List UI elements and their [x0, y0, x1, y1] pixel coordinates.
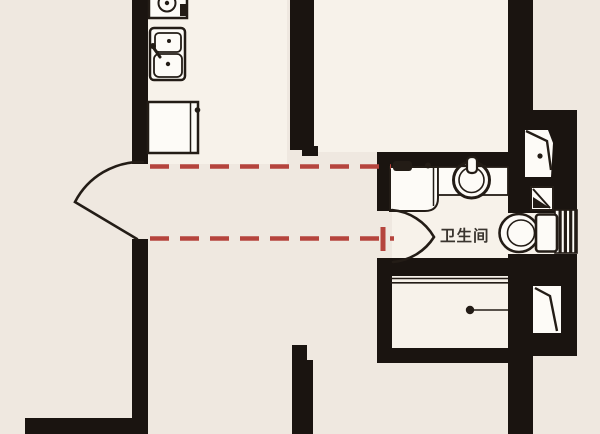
- wall-right-column-top: [508, 0, 533, 116]
- cabinet-hinge-dot: [195, 107, 201, 113]
- wall-bottom-left: [25, 418, 148, 434]
- flue-shaft: [531, 187, 553, 210]
- wall-mid-top-foot: [302, 146, 318, 156]
- wall-left-lower: [132, 239, 148, 421]
- floorplan-canvas: 卫生间: [0, 0, 600, 434]
- kitchen-stove: [149, 0, 187, 18]
- radiator-fin: [564, 210, 567, 253]
- stove-burner-dot: [165, 1, 169, 5]
- kitchen-sink: [150, 28, 185, 80]
- wall-right-column-bottom: [508, 274, 533, 434]
- wall-right-mid-block: [508, 254, 577, 276]
- lower-room-bottom-wall: [377, 348, 508, 363]
- washer-dot: [425, 163, 431, 169]
- toilet: [500, 214, 558, 252]
- sink-drain-lower: [166, 62, 170, 66]
- washer-body: [390, 167, 438, 211]
- basin-tap: [467, 157, 477, 173]
- washing-machine: [390, 161, 438, 211]
- upper-door-panel-knob-dot: [537, 153, 542, 158]
- sink-drain-upper: [167, 39, 171, 43]
- toilet-cistern: [536, 215, 557, 252]
- wall-mid-top: [290, 0, 314, 150]
- bathroom-label: 卫生间: [440, 224, 500, 246]
- stove-knob: [180, 4, 186, 16]
- top-room-interior: [314, 0, 508, 152]
- radiator-fin: [569, 210, 572, 253]
- wall-left-upper: [132, 0, 148, 164]
- floorplan-drawing: [0, 0, 600, 434]
- washer-control-box: [393, 161, 412, 171]
- radiator-fin: [574, 210, 577, 253]
- lower-room-interior: [392, 276, 508, 348]
- radiator-fin: [559, 210, 562, 253]
- kitchen-cabinet: [148, 102, 200, 153]
